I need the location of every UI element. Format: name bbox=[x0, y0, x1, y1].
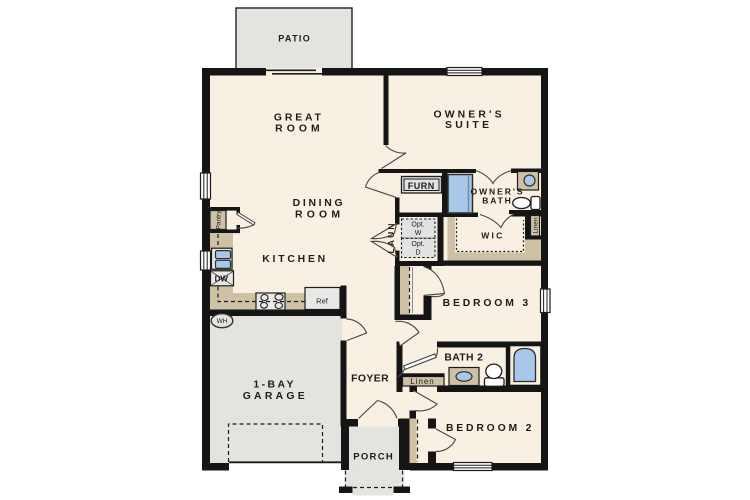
svg-text:WIC: WIC bbox=[481, 231, 502, 241]
svg-text:W: W bbox=[415, 230, 422, 237]
svg-text:Linen: Linen bbox=[532, 217, 539, 233]
svg-text:LAUN: LAUN bbox=[386, 224, 396, 254]
svg-text:FURN: FURN bbox=[408, 181, 435, 191]
svg-text:D: D bbox=[415, 250, 420, 257]
svg-text:DW: DW bbox=[215, 274, 229, 283]
svg-text:Pantry: Pantry bbox=[215, 210, 222, 230]
svg-text:Opt.: Opt. bbox=[411, 241, 424, 248]
svg-text:Opt.: Opt. bbox=[411, 222, 424, 229]
svg-text:WH: WH bbox=[217, 318, 228, 325]
svg-text:GREAT: GREAT bbox=[274, 113, 322, 124]
svg-text:SUITE: SUITE bbox=[445, 120, 489, 131]
svg-text:Linen: Linen bbox=[410, 377, 434, 386]
svg-text:PATIO: PATIO bbox=[278, 34, 310, 44]
svg-text:FOYER: FOYER bbox=[351, 374, 389, 385]
svg-text:Ref: Ref bbox=[316, 297, 329, 306]
svg-text:PORCH: PORCH bbox=[353, 452, 393, 463]
svg-text:BATH 2: BATH 2 bbox=[444, 352, 483, 363]
